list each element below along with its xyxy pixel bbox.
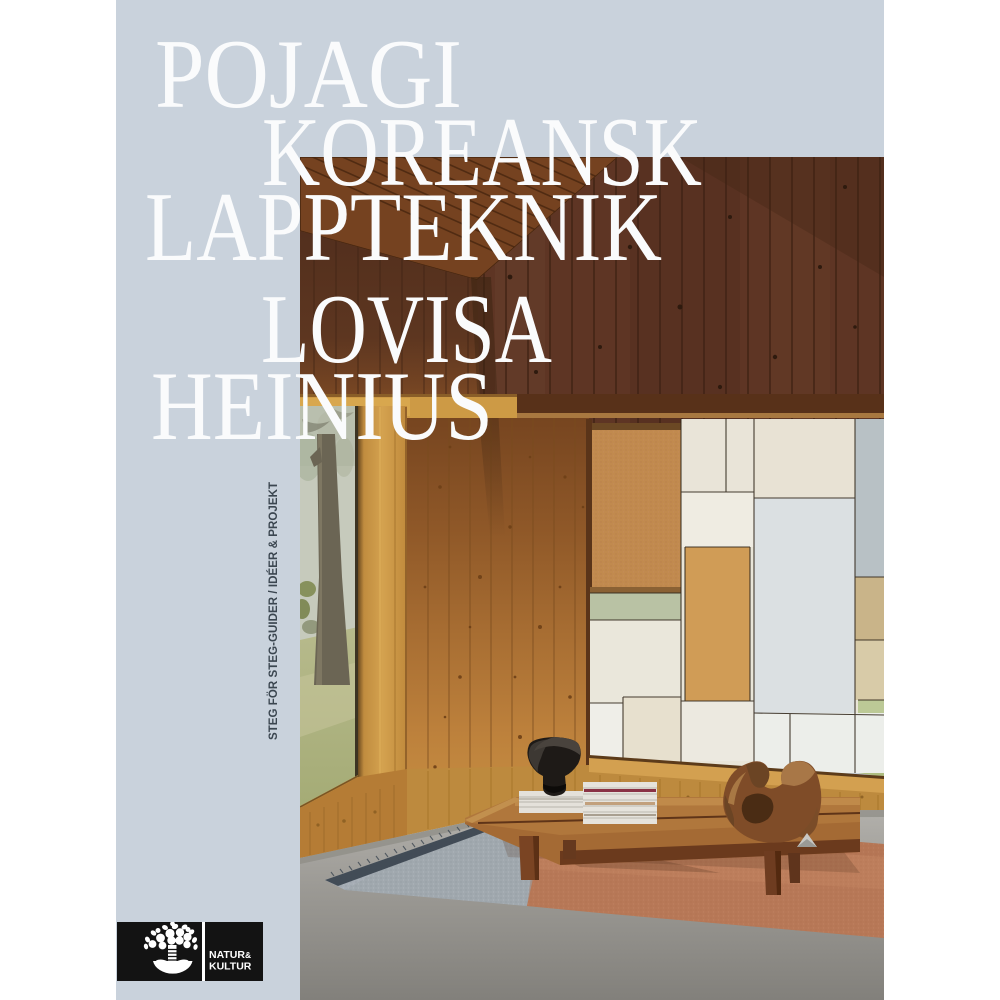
svg-text:KULTUR: KULTUR xyxy=(209,961,252,973)
svg-text:LAPPTEKNIK: LAPPTEKNIK xyxy=(145,174,662,282)
svg-text:NATUR&: NATUR& xyxy=(209,949,251,961)
svg-text:STEG FÖR STEG-GUIDER / IDÉER &: STEG FÖR STEG-GUIDER / IDÉER & PROJEKT xyxy=(267,482,280,740)
svg-text:HEINIUS: HEINIUS xyxy=(151,353,493,461)
